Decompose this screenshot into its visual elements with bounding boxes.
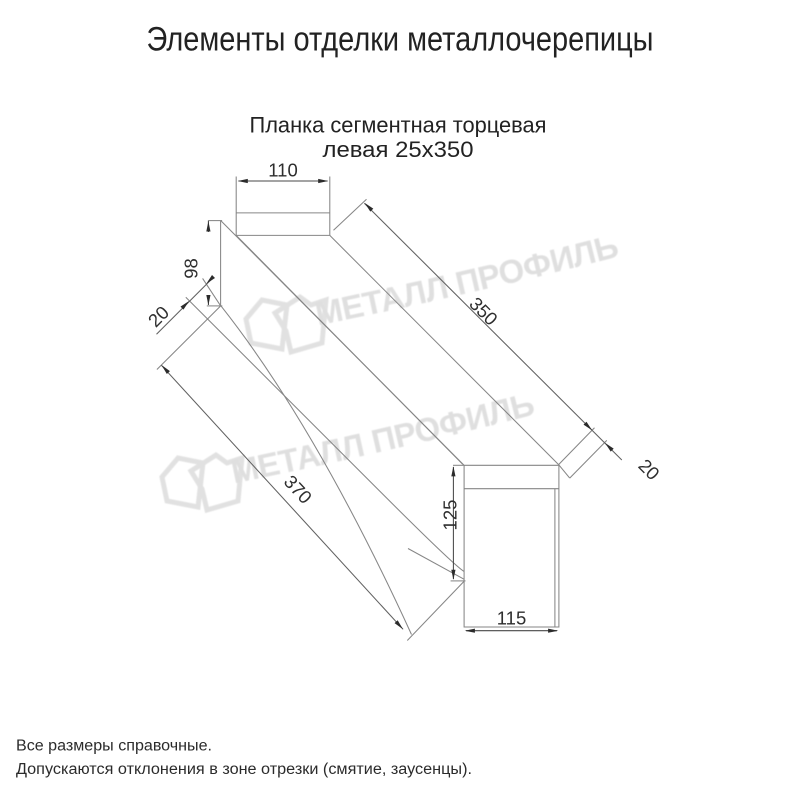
svg-text:20: 20 [144,302,173,331]
svg-text:Все размеры справочные.: Все размеры справочные. [16,738,212,755]
svg-text:98: 98 [181,258,202,279]
svg-text:левая 25х350: левая 25х350 [323,137,474,162]
svg-text:Элементы отделки металлочерепи: Элементы отделки металлочерепицы [147,21,654,59]
svg-text:Допускаются отклонения в зоне: Допускаются отклонения в зоне отрезки (с… [16,761,472,778]
svg-text:125: 125 [440,500,461,531]
svg-text:110: 110 [268,160,298,181]
svg-text:Планка сегментная торцевая: Планка сегментная торцевая [250,112,547,137]
svg-text:20: 20 [634,455,663,484]
svg-text:115: 115 [497,608,527,629]
